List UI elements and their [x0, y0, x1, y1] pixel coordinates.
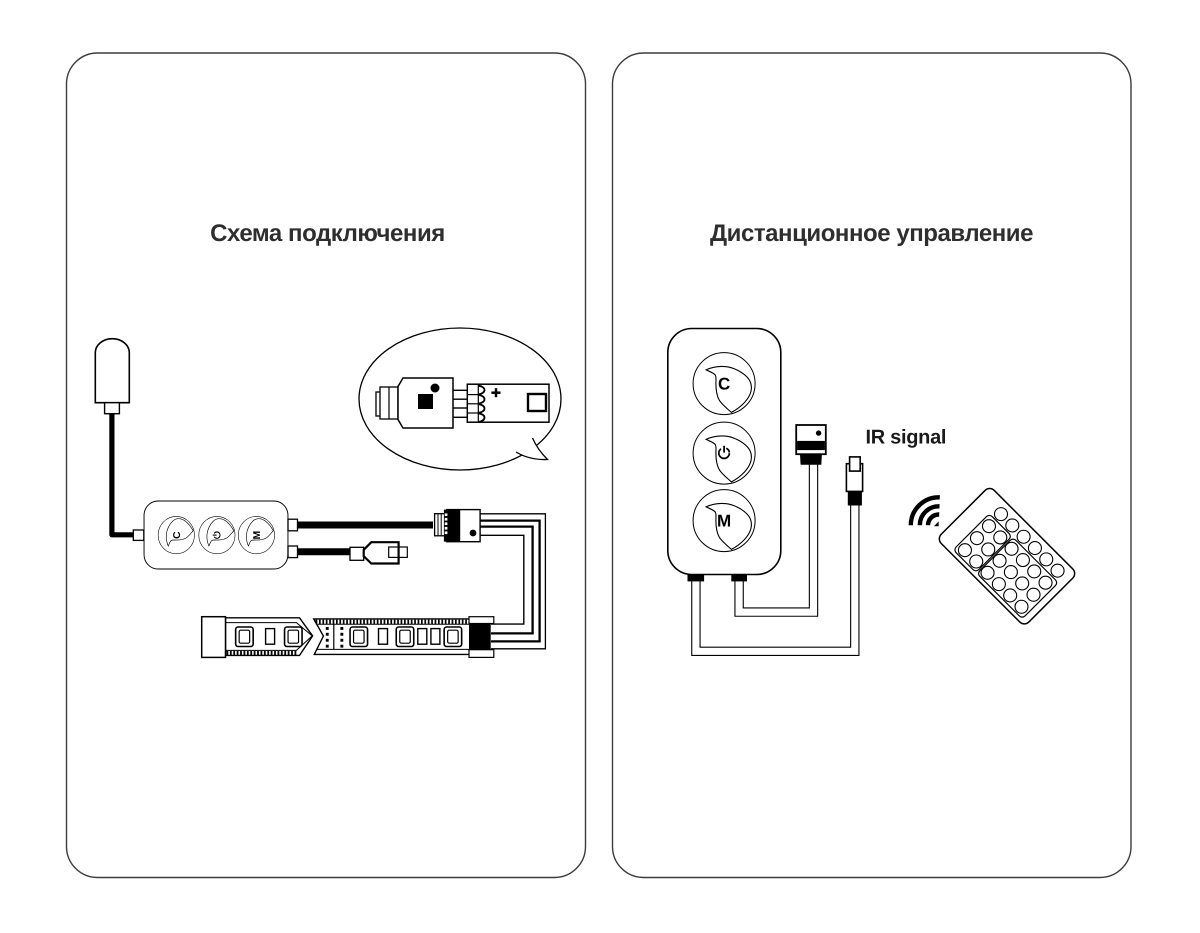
svg-text:IR signal: IR signal	[866, 427, 947, 449]
svg-text:Дистанционное управление: Дистанционное управление	[710, 220, 1033, 247]
svg-text:Схема подключения: Схема подключения	[210, 220, 445, 247]
